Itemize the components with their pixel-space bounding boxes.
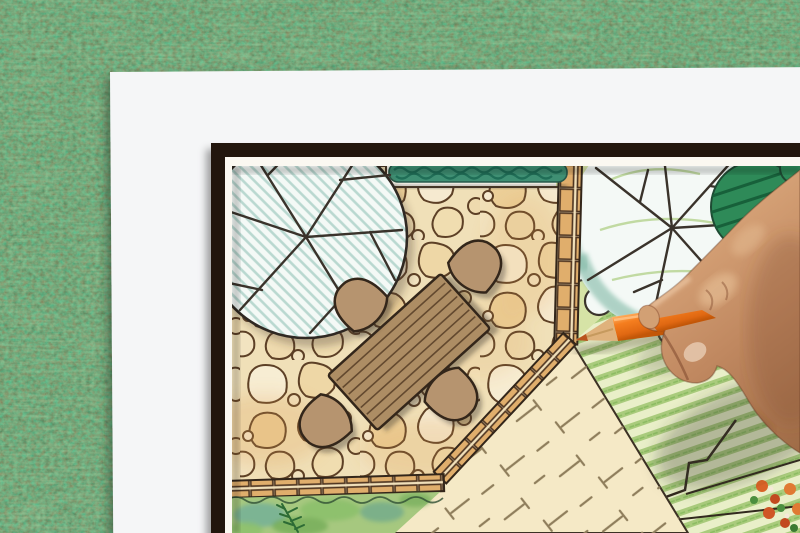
frame-inner-shadow <box>232 166 800 174</box>
frame-inner-shadow <box>232 166 240 533</box>
wood-walkway <box>554 164 582 345</box>
garden-plan-photo <box>0 0 800 533</box>
